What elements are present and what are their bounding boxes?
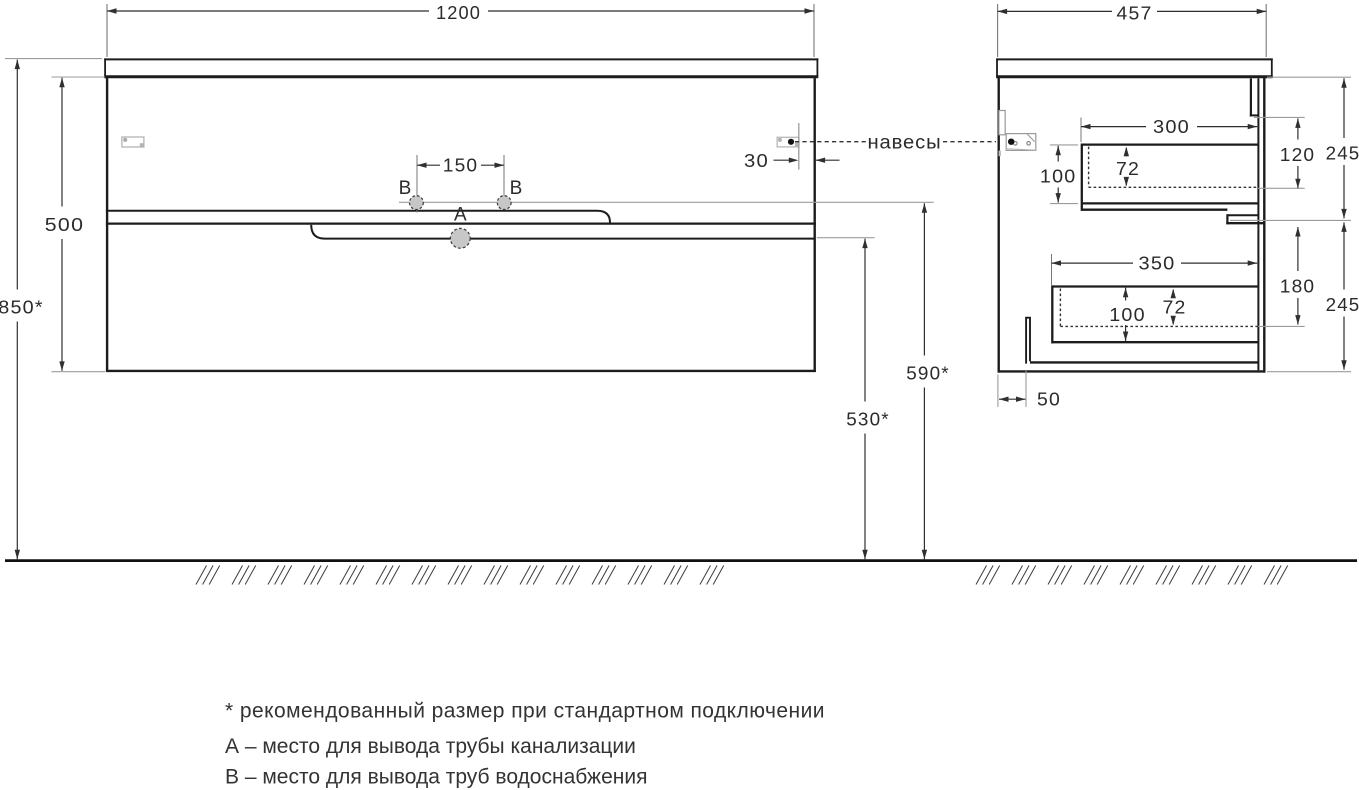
svg-text:500: 500 <box>45 215 85 235</box>
svg-text:245: 245 <box>1326 144 1359 164</box>
svg-text:180: 180 <box>1280 277 1316 297</box>
svg-text:А – место для вывода трубы кан: А – место для вывода трубы канализации <box>225 735 636 758</box>
svg-text:72: 72 <box>1116 159 1140 179</box>
svg-text:300: 300 <box>1153 117 1190 137</box>
svg-text:590*: 590* <box>906 364 950 384</box>
svg-text:50: 50 <box>1037 390 1061 410</box>
svg-text:B: B <box>510 178 523 199</box>
svg-text:150: 150 <box>443 156 479 176</box>
svg-text:530*: 530* <box>846 410 890 430</box>
svg-text:навесы: навесы <box>868 133 942 154</box>
svg-text:A: A <box>454 205 467 226</box>
svg-text:1200: 1200 <box>436 3 481 23</box>
svg-text:72: 72 <box>1163 298 1187 318</box>
svg-text:120: 120 <box>1280 145 1316 165</box>
svg-text:B: B <box>399 178 412 199</box>
svg-text:850*: 850* <box>0 298 44 318</box>
svg-text:350: 350 <box>1139 254 1176 274</box>
svg-text:100: 100 <box>1109 305 1146 325</box>
svg-text:* рекомендованный размер при с: * рекомендованный размер при стандартном… <box>225 700 825 723</box>
svg-text:100: 100 <box>1040 167 1077 187</box>
svg-text:В – место для вывода труб водо: В – место для вывода труб водоснабжения <box>225 766 647 789</box>
svg-text:30: 30 <box>744 151 769 171</box>
svg-text:457: 457 <box>1117 4 1153 24</box>
svg-text:245: 245 <box>1326 295 1359 315</box>
